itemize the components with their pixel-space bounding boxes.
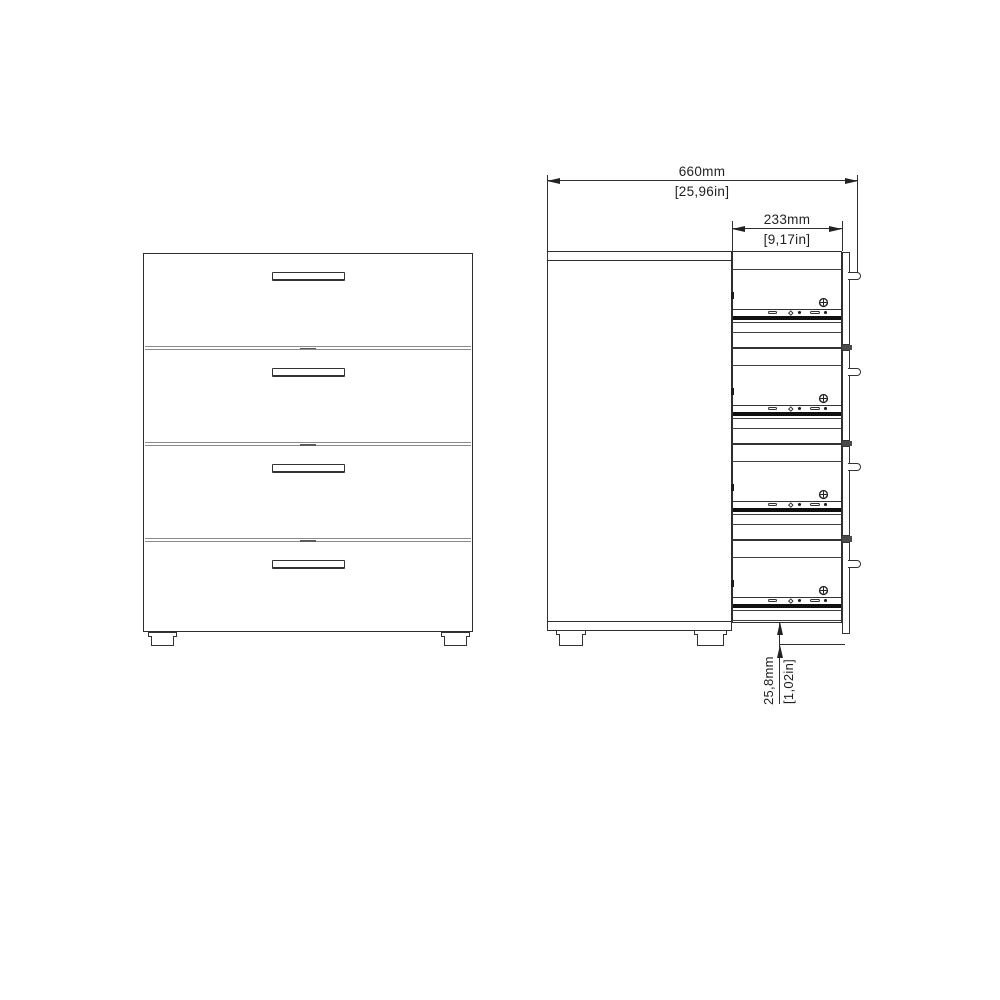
drawer-slide-rail bbox=[733, 405, 841, 416]
dimension-label-mm: 660mm bbox=[547, 164, 857, 179]
rail-under-line bbox=[732, 322, 842, 323]
arrowhead-up-icon bbox=[777, 622, 783, 635]
side-drawer-module bbox=[732, 347, 842, 443]
drawer-divider bbox=[145, 538, 471, 542]
extension-line bbox=[857, 175, 858, 273]
handle-side-profile bbox=[848, 463, 861, 471]
drawer-slide-rail bbox=[733, 309, 841, 320]
drawer-handle bbox=[272, 464, 345, 473]
rail-slot bbox=[768, 311, 777, 315]
drawer-bottom-line bbox=[732, 332, 842, 333]
dimension-label-mm: 25,8mm bbox=[761, 652, 778, 710]
side-drawer-module bbox=[732, 443, 842, 539]
drawer-divider bbox=[145, 442, 471, 446]
dimension-label-mm: 233mm bbox=[732, 212, 842, 227]
rail-rivet-dot bbox=[824, 503, 827, 506]
handle-side-profile bbox=[848, 560, 861, 568]
drawer-front-edge bbox=[842, 542, 851, 634]
side-drawer-module bbox=[732, 251, 842, 347]
rail-rivet-dot bbox=[798, 599, 801, 602]
rail-rivet bbox=[788, 406, 793, 411]
side-back-foot bbox=[559, 634, 583, 646]
drawer-top-line bbox=[732, 269, 842, 270]
column-division-line bbox=[732, 347, 842, 349]
cam-mark bbox=[731, 484, 734, 491]
drawer-top-line bbox=[732, 365, 842, 366]
drawer-slide-rail bbox=[733, 597, 841, 608]
side-panel bbox=[547, 260, 732, 622]
rail-rivet-dot bbox=[824, 407, 827, 410]
side-drawer-module bbox=[732, 539, 842, 635]
technical-drawing-canvas: 660mm [25,96in] 233mm [9,17in] 25,8mm [1… bbox=[0, 0, 1000, 1000]
rail-rivet bbox=[788, 502, 793, 507]
rail-under-line bbox=[732, 514, 842, 515]
screw-icon bbox=[818, 585, 829, 596]
front-left-foot bbox=[151, 636, 174, 646]
drawer-bottom-line bbox=[732, 620, 842, 621]
drawer-front-edge bbox=[842, 350, 851, 441]
handle-side-profile bbox=[848, 368, 861, 376]
cam-mark bbox=[731, 292, 734, 299]
rail-slot bbox=[768, 599, 777, 603]
dimension-line bbox=[547, 180, 858, 181]
drawer-handle bbox=[272, 560, 345, 569]
drawer-handle bbox=[272, 272, 345, 281]
rail-slot bbox=[810, 599, 820, 603]
drawer-top-line bbox=[732, 461, 842, 462]
rail-rivet-dot bbox=[798, 407, 801, 410]
divider-dash bbox=[300, 348, 316, 350]
divider-dash bbox=[300, 444, 316, 446]
drawer-front-edge bbox=[842, 446, 851, 537]
divider-dash bbox=[300, 540, 316, 542]
dimension-label-in: [25,96in] bbox=[547, 184, 857, 199]
screw-icon bbox=[818, 393, 829, 404]
rail-under-line bbox=[732, 418, 842, 419]
rail-slot bbox=[810, 503, 820, 507]
dimension-label-in: [9,17in] bbox=[732, 232, 842, 247]
rail-slot bbox=[810, 407, 820, 411]
drawer-bottom-line bbox=[732, 428, 842, 429]
drawer-divider bbox=[145, 346, 471, 350]
dimension-label-in: [1,02in] bbox=[781, 652, 798, 710]
drawer-slide-rail bbox=[733, 501, 841, 512]
screw-icon bbox=[818, 489, 829, 500]
column-division-line bbox=[732, 443, 842, 445]
drawer-top-line bbox=[732, 557, 842, 558]
screw-icon bbox=[818, 297, 829, 308]
cam-mark bbox=[731, 388, 734, 395]
dimension-line bbox=[732, 228, 842, 229]
rail-rivet-dot bbox=[798, 311, 801, 314]
rail-slot bbox=[768, 407, 777, 411]
rail-rivet-dot bbox=[824, 599, 827, 602]
cam-mark bbox=[731, 580, 734, 587]
rail-rivet-dot bbox=[798, 503, 801, 506]
handle-side-profile bbox=[848, 272, 861, 280]
side-front-foot bbox=[697, 634, 724, 646]
rail-under-line bbox=[732, 610, 842, 611]
rail-slot bbox=[768, 503, 777, 507]
front-right-foot bbox=[444, 636, 467, 646]
rail-rivet-dot bbox=[824, 311, 827, 314]
floor-extension-line bbox=[779, 644, 845, 645]
rail-slot bbox=[810, 311, 820, 315]
rail-rivet bbox=[788, 310, 793, 315]
drawer-bottom-line bbox=[732, 524, 842, 525]
drawer-front-edge bbox=[842, 252, 851, 345]
rail-rivet bbox=[788, 598, 793, 603]
drawer-handle bbox=[272, 368, 345, 377]
column-division-line bbox=[732, 539, 842, 541]
